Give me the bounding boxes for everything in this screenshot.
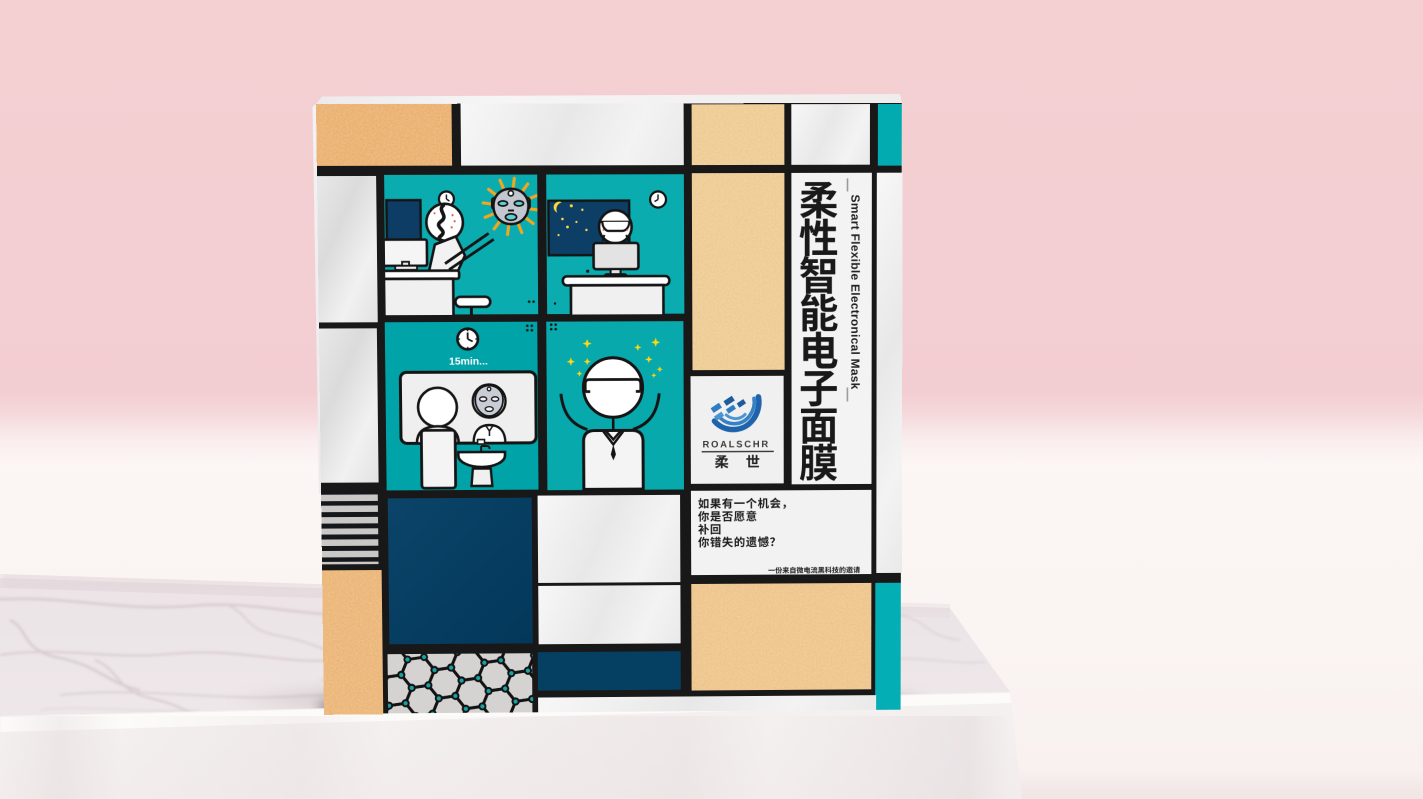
svg-text:Smart Flexible Electronical Ma: Smart Flexible Electronical Mask: [848, 194, 862, 389]
svg-text:ROALSCHR: ROALSCHR: [703, 439, 770, 450]
svg-text:15min...: 15min...: [448, 355, 487, 367]
